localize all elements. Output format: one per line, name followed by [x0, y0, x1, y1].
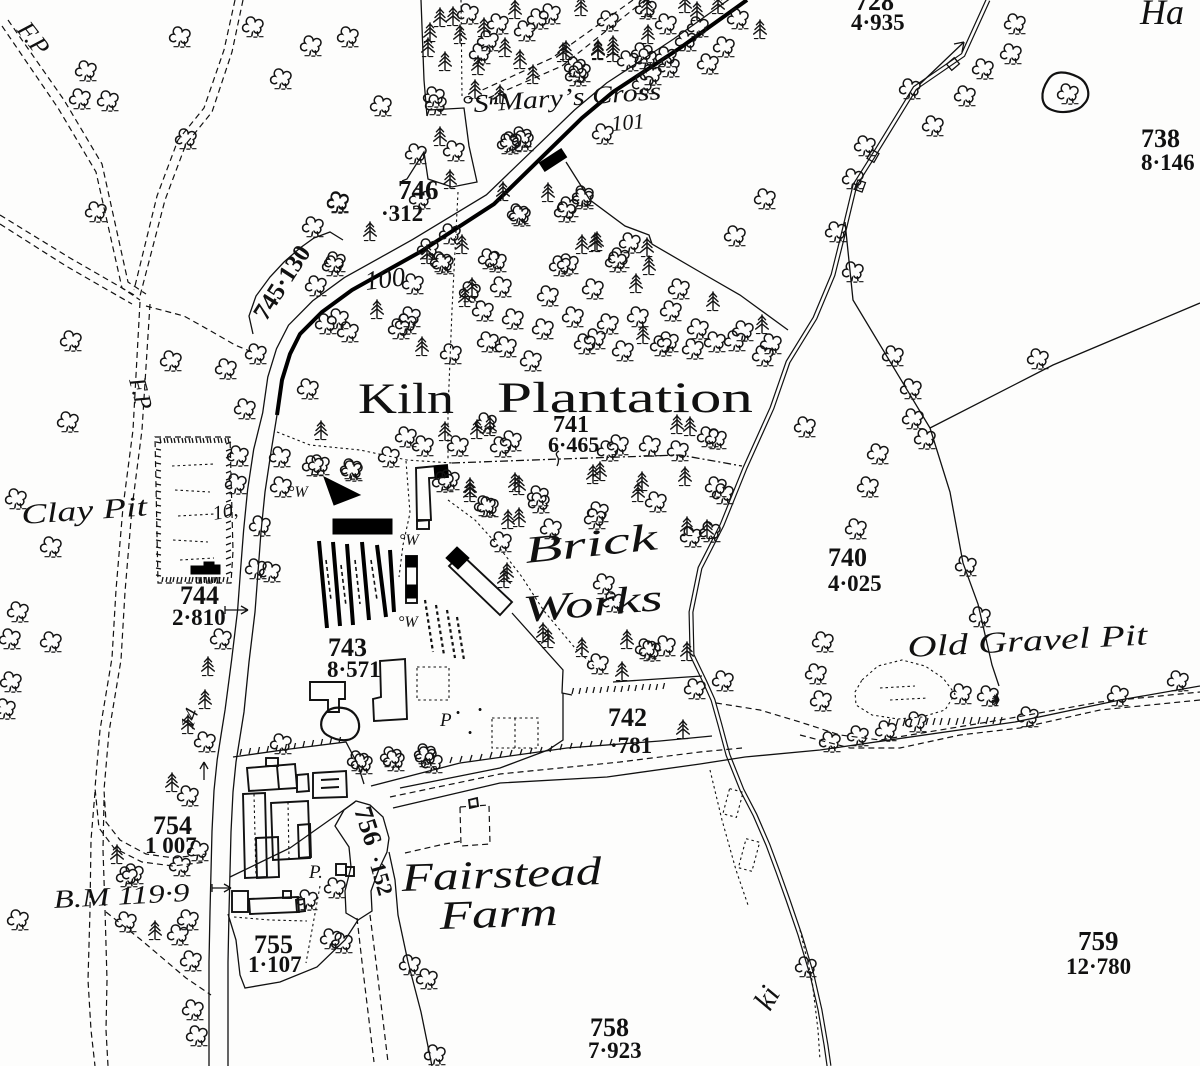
svg-text:759: 759 [1078, 926, 1119, 956]
svg-text:2·810: 2·810 [172, 605, 226, 630]
svg-text:Kiln: Kiln [358, 376, 454, 423]
svg-text:P.: P. [308, 862, 323, 883]
svg-text:12·780: 12·780 [1066, 954, 1131, 979]
svg-text:Farm: Farm [437, 889, 558, 938]
svg-text:742: 742 [608, 703, 647, 732]
svg-text:6·465: 6·465 [548, 432, 599, 457]
svg-text:740: 740 [828, 543, 867, 572]
svg-text:°W: °W [399, 532, 420, 549]
svg-text:101: 101 [610, 108, 645, 136]
svg-text:°W: °W [288, 484, 309, 501]
svg-text:4·935: 4·935 [851, 10, 905, 35]
svg-text:Ha: Ha [1139, 0, 1184, 32]
svg-text:Plantation: Plantation [497, 375, 753, 422]
svg-text:·781: ·781 [610, 733, 652, 758]
svg-text:738: 738 [1141, 124, 1180, 153]
svg-text:P: P [439, 710, 452, 731]
svg-text:1·107: 1·107 [248, 952, 302, 977]
svg-text:·312: ·312 [381, 201, 423, 226]
svg-text:8·146: 8·146 [1141, 150, 1195, 175]
svg-text:7·923: 7·923 [588, 1038, 642, 1063]
svg-text:100: 100 [363, 261, 407, 296]
svg-text:8·571: 8·571 [327, 657, 381, 682]
svg-text:10,: 10, [211, 499, 239, 525]
svg-text:°W: °W [398, 614, 419, 631]
svg-text:4·025: 4·025 [828, 571, 882, 596]
